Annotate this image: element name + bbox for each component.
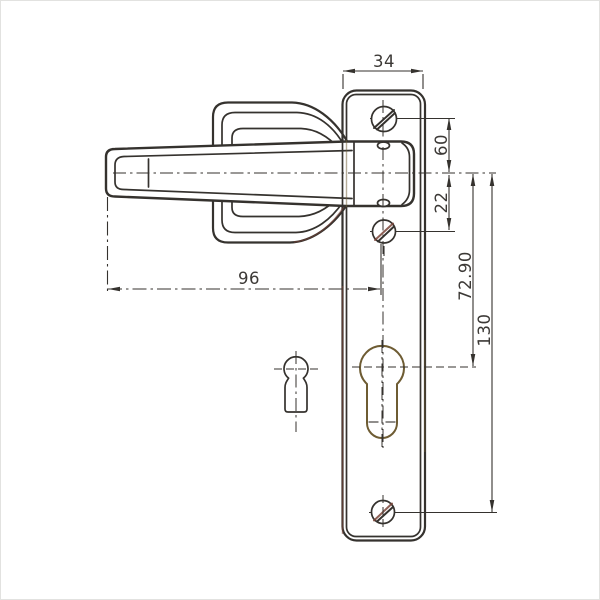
- arrowhead: [368, 287, 380, 292]
- dimension-value: 72.90: [456, 251, 475, 301]
- dimension-value: 130: [475, 314, 494, 347]
- handle-grip-outline: [106, 142, 414, 207]
- bottom-screw: [369, 495, 497, 531]
- arrowhead: [447, 118, 452, 130]
- arrowhead: [447, 218, 452, 230]
- drawing-canvas: 34 96 60 22: [0, 0, 600, 600]
- dimension-value: 96: [238, 269, 260, 288]
- arrowhead: [447, 160, 452, 172]
- arrowhead: [490, 500, 495, 512]
- handle-technical-drawing: 34 96 60 22: [0, 0, 600, 600]
- dimension-mid-screw-offset: 22: [432, 175, 451, 230]
- arrowhead: [108, 287, 120, 292]
- arrowhead: [471, 174, 476, 186]
- dimension-value: 22: [432, 192, 451, 214]
- dimensions: 34 96 60 22: [108, 52, 495, 512]
- keyhole-profile: [274, 351, 318, 432]
- arrowhead: [343, 69, 355, 74]
- dimension-top-screw-offset: 60: [432, 118, 451, 172]
- arrowhead: [411, 69, 423, 74]
- dimension-plate-width: 34: [343, 52, 423, 89]
- dimension-cylinder-offset: 72.90: [456, 174, 475, 366]
- arrowhead: [490, 174, 495, 186]
- euro-cylinder-hole: [352, 340, 476, 448]
- arrowhead: [471, 354, 476, 366]
- dimension-value: 34: [373, 52, 395, 71]
- dimension-value: 60: [432, 134, 451, 156]
- arrowhead: [447, 175, 452, 187]
- dimension-bottom-screw-offset: 130: [475, 174, 494, 512]
